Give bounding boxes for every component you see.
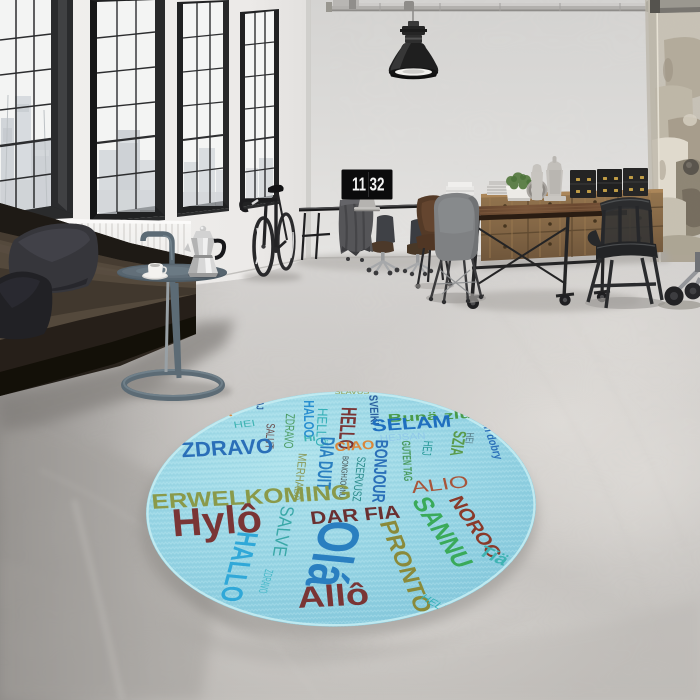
svg-text:Allô: Allô xyxy=(296,578,371,615)
svg-text:Hi: Hi xyxy=(303,434,316,444)
svg-text:GUTEN TAG: GUTEN TAG xyxy=(398,440,414,481)
svg-text:ZDRAVO: ZDRAVO xyxy=(280,414,297,449)
svg-text:HEI: HEI xyxy=(463,432,477,444)
svg-text:ZDRAVO: ZDRAVO xyxy=(180,435,274,462)
svg-text:HEJ: HEJ xyxy=(418,440,435,455)
svg-text:HEI: HEI xyxy=(233,419,256,431)
svg-text:BONJOUR: BONJOUR xyxy=(367,439,390,503)
svg-text:32: 32 xyxy=(370,175,385,195)
svg-text:CIAO: CIAO xyxy=(334,438,376,454)
svg-text:11: 11 xyxy=(352,175,366,195)
